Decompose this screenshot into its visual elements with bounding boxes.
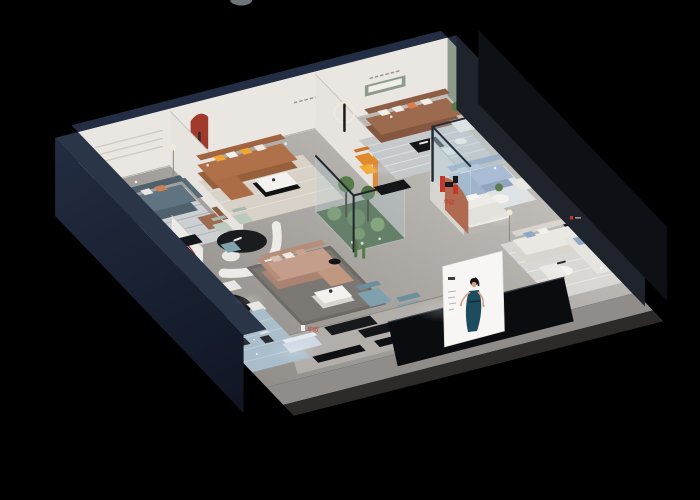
- brand-logo-mark: [445, 182, 453, 187]
- side-table: [329, 259, 341, 265]
- poster-woman-face: [471, 282, 476, 287]
- brand-logo-mark: [453, 176, 458, 183]
- light-pool: [538, 261, 582, 279]
- wall-lettering: [397, 71, 399, 72]
- light-pool: [268, 341, 320, 363]
- table-plant: [495, 183, 503, 191]
- downlight-dot: [390, 115, 393, 118]
- wall-lettering: [370, 78, 372, 79]
- brand-mini-mark: [570, 216, 573, 220]
- rug-speckle: [253, 339, 255, 341]
- poster-logo-mark: [448, 277, 455, 280]
- reception-sign-mark: [301, 325, 305, 331]
- downlight-dot: [600, 267, 603, 270]
- brand-logo-mark: [440, 176, 445, 192]
- wall-lettering: [294, 102, 296, 103]
- wall-lettering: [391, 72, 393, 73]
- brand-logo-mark: [453, 185, 458, 194]
- wall-lettering: [305, 99, 307, 100]
- wall-lettering: [381, 75, 383, 76]
- brand-name-text: 华欧: [443, 198, 455, 206]
- light-pool: [362, 163, 398, 177]
- reception-sign-text: 华欧: [307, 326, 319, 334]
- poster-woman-belt: [469, 301, 480, 302]
- wall-lettering: [386, 74, 388, 75]
- table-vase: [329, 289, 332, 292]
- downlight-dot: [206, 164, 209, 167]
- brand-mini-label: [575, 217, 581, 219]
- floor-lamp-head: [170, 145, 176, 151]
- wall-lettering: [310, 98, 312, 99]
- downlight-dot: [135, 181, 138, 184]
- wall-lettering: [300, 101, 302, 102]
- oval-dining-table: [217, 230, 267, 253]
- light-pool: [484, 213, 516, 227]
- rug-speckle: [256, 353, 258, 355]
- poster-woman-hand: [460, 304, 462, 306]
- wall-lettering: [375, 76, 377, 77]
- showroom-render: 华欧 华欧: [0, 0, 700, 500]
- downlight-dot: [494, 167, 497, 170]
- downlight-dot: [284, 142, 287, 145]
- poster-woman-hand: [482, 305, 484, 307]
- table-decor: [272, 178, 275, 181]
- render-canvas: 华欧 华欧: [0, 0, 700, 500]
- light-pool: [234, 293, 266, 307]
